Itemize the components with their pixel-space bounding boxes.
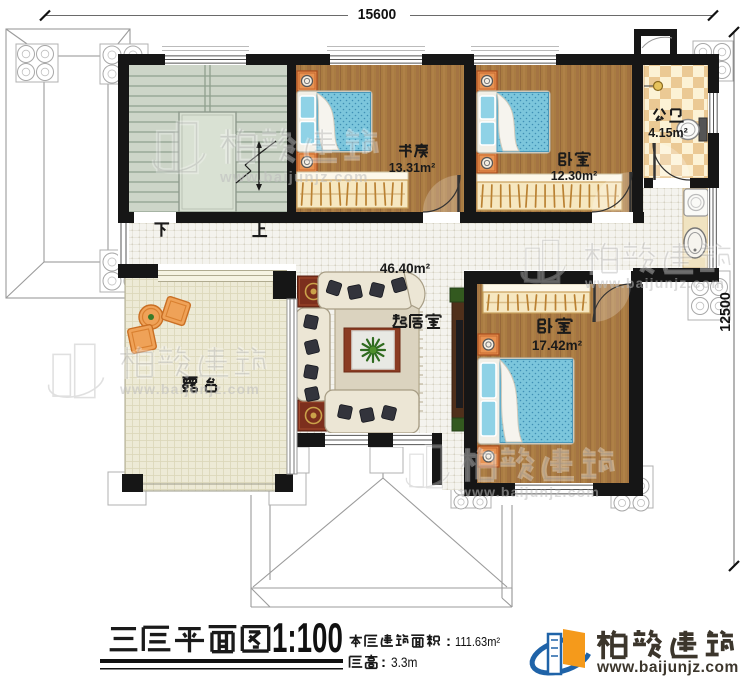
svg-text:www.baijunjz.com: www.baijunjz.com	[584, 275, 725, 291]
svg-text:www.baijunjz.com: www.baijunjz.com	[119, 381, 260, 397]
svg-text:46.40m²: 46.40m²	[380, 261, 431, 276]
svg-text:www.baijunjz.com: www.baijunjz.com	[596, 659, 739, 676]
svg-text:1:100: 1:100	[272, 614, 343, 661]
svg-text:4.15m²: 4.15m²	[648, 126, 688, 140]
svg-text::: :	[381, 654, 386, 671]
svg-text:www.baijunjz.com: www.baijunjz.com	[459, 484, 600, 500]
svg-text:12.30m²: 12.30m²	[551, 169, 598, 183]
svg-text:3.3m: 3.3m	[391, 654, 417, 670]
svg-text::: :	[446, 633, 451, 650]
svg-text:13.31m²: 13.31m²	[389, 161, 436, 175]
svg-text:www.baijunjz.com: www.baijunjz.com	[219, 169, 369, 186]
svg-text:17.42m²: 17.42m²	[532, 338, 583, 353]
svg-text:111.63m²: 111.63m²	[455, 634, 500, 649]
svg-text:12500: 12500	[718, 292, 734, 332]
svg-text:15600: 15600	[358, 7, 396, 24]
